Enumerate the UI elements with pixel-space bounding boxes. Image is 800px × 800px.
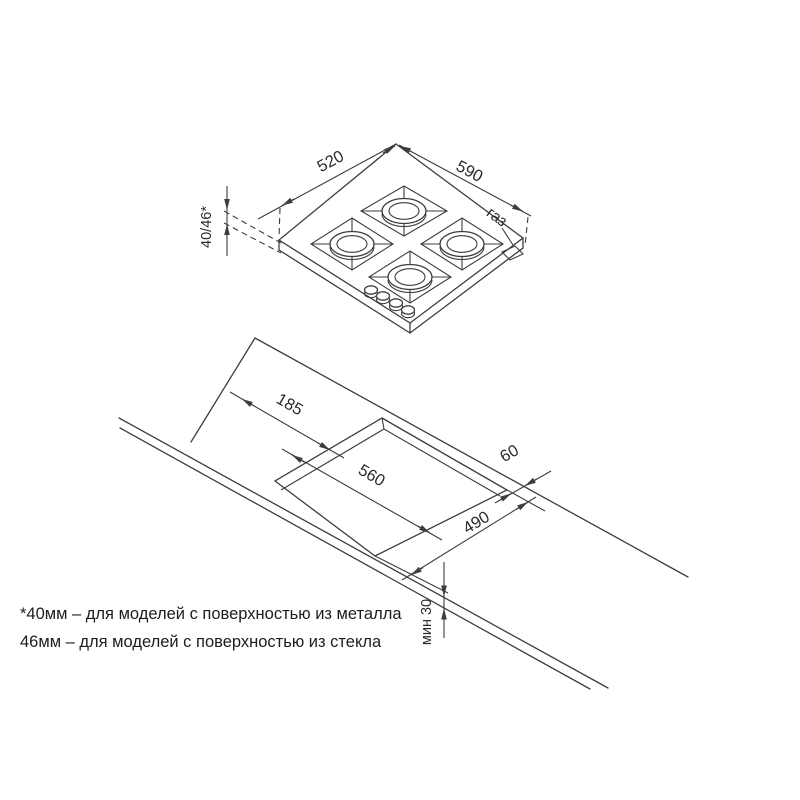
cutout-inner-depth [281,429,500,496]
dim-185: 185 [230,390,344,458]
dim-490-label: 490 [460,508,493,538]
dim-560-label: 560 [355,461,388,490]
dim-490: 490 [375,497,536,593]
dim-60-label: 60 [497,441,522,466]
dim-height: 40/46* [199,186,281,256]
hob-isometric-view: газ 520 590 40/46* [199,144,531,333]
dim-min-30: мин 30 [419,562,444,645]
footnote-line-2: 46мм – для моделей с поверхностью из сте… [20,633,382,651]
footnote: *40мм – для моделей с поверхностью из ме… [20,605,402,651]
dim-min-30-label: мин 30 [419,599,435,645]
dim-520-label: 520 [314,147,347,176]
dim-185-label: 185 [273,390,306,419]
dim-560: 560 [282,449,442,540]
dim-60: 60 [495,441,551,511]
dim-height-label: 40/46* [199,206,215,248]
worktop-left-edge [191,338,255,442]
footnote-line-1: *40мм – для моделей с поверхностью из ме… [20,605,402,623]
installation-diagram-svg: газ 520 590 40/46* [0,0,800,800]
dim-590-label: 590 [453,157,486,186]
installation-diagram-page: газ 520 590 40/46* [0,0,800,800]
worktop-back-edge [255,338,688,577]
